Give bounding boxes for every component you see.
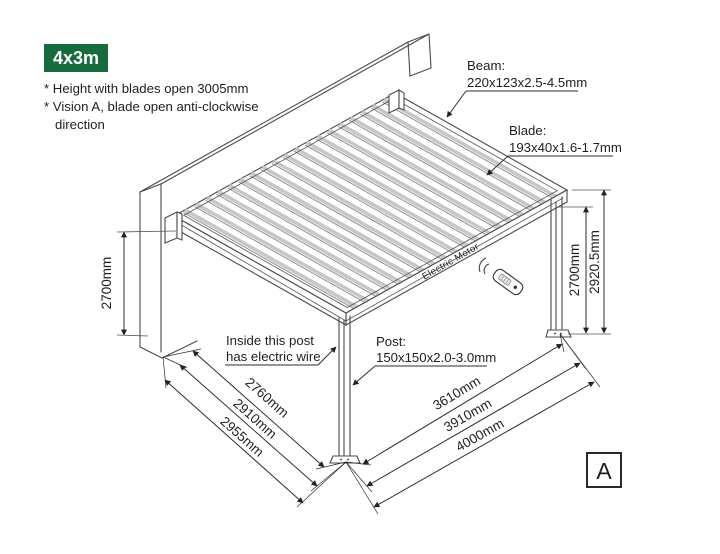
beam-spec: 220x123x2.5-4.5mm — [467, 75, 587, 90]
blade-title: Blade: — [509, 123, 546, 138]
wall-bracket — [165, 212, 182, 243]
post-title: Post: — [376, 334, 406, 349]
notes: * Height with blades open 3005mm * Visio… — [44, 81, 259, 132]
dimension-right-spans: 3610mm 3910mm 4000mm — [363, 344, 594, 507]
note-line-2: * Vision A, blade open anti-clockwise — [44, 99, 259, 114]
view-label-letter: A — [596, 458, 612, 484]
view-label-box: A — [587, 453, 621, 487]
dim-right-2700: 2700mm — [567, 244, 582, 297]
beam-title: Beam: — [467, 58, 505, 73]
pergola-technical-drawing: Electric Motor 2700mm 2700mm 2920.5mm — [0, 0, 720, 554]
drawing-svg: Electric Motor 2700mm 2700mm 2920.5mm — [0, 0, 720, 554]
note-line-1: * Height with blades open 3005mm — [44, 81, 249, 96]
callout-beam: Beam: 220x123x2.5-4.5mm — [447, 58, 587, 117]
note-line-3: direction — [55, 117, 105, 132]
dim-left-2700: 2700mm — [99, 257, 114, 310]
dim-right-2920: 2920.5mm — [587, 230, 602, 294]
signal-waves-icon — [479, 258, 489, 274]
dimension-wall-height: 2700mm — [99, 231, 176, 336]
top-corner-bracket — [389, 90, 404, 113]
dimension-post-height: 2700mm 2920.5mm — [558, 190, 611, 334]
blade-spec: 193x40x1.6-1.7mm — [509, 140, 622, 155]
remote-control-icon — [479, 258, 524, 297]
wire-note-line1: Inside this post — [226, 333, 314, 348]
wire-note-line2: has electric wire — [226, 349, 321, 364]
dimension-left-spans: 2760mm 2910mm 2955mm — [165, 351, 324, 503]
size-badge: 4x3m — [44, 44, 108, 72]
front-post — [330, 316, 360, 463]
post-spec: 150x150x2.0-3.0mm — [376, 350, 496, 365]
size-badge-label: 4x3m — [53, 48, 99, 68]
callout-electric-wire: Inside this post has electric wire — [225, 333, 336, 365]
